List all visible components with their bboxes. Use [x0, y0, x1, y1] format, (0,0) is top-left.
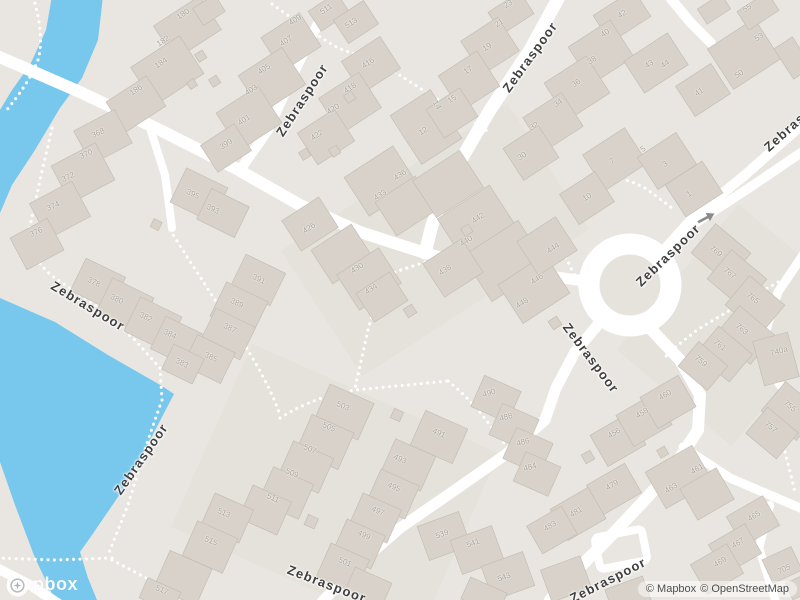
building	[697, 0, 730, 24]
building	[581, 450, 595, 464]
attribution-link[interactable]: © Mapbox	[646, 583, 696, 595]
road	[150, 128, 172, 228]
attribution-link[interactable]: © OpenStreetMap	[700, 583, 789, 595]
footpath	[785, 452, 795, 492]
attribution: © Mapbox© OpenStreetMap	[638, 581, 797, 597]
mapbox-logo-icon	[6, 574, 29, 597]
mapbox-logo[interactable]: mapbox	[6, 574, 78, 595]
building	[657, 446, 669, 458]
roundabout-island	[600, 255, 660, 315]
building	[150, 219, 162, 231]
building	[208, 75, 220, 87]
map-graphics	[0, 0, 800, 600]
attribution-links: © Mapbox© OpenStreetMap	[646, 583, 789, 595]
water-lake	[0, 298, 174, 600]
map-canvas[interactable]: ZebraspoorZebraspoorZebraspoorZebraspoor…	[0, 0, 800, 600]
building	[194, 50, 206, 62]
building	[548, 316, 562, 330]
